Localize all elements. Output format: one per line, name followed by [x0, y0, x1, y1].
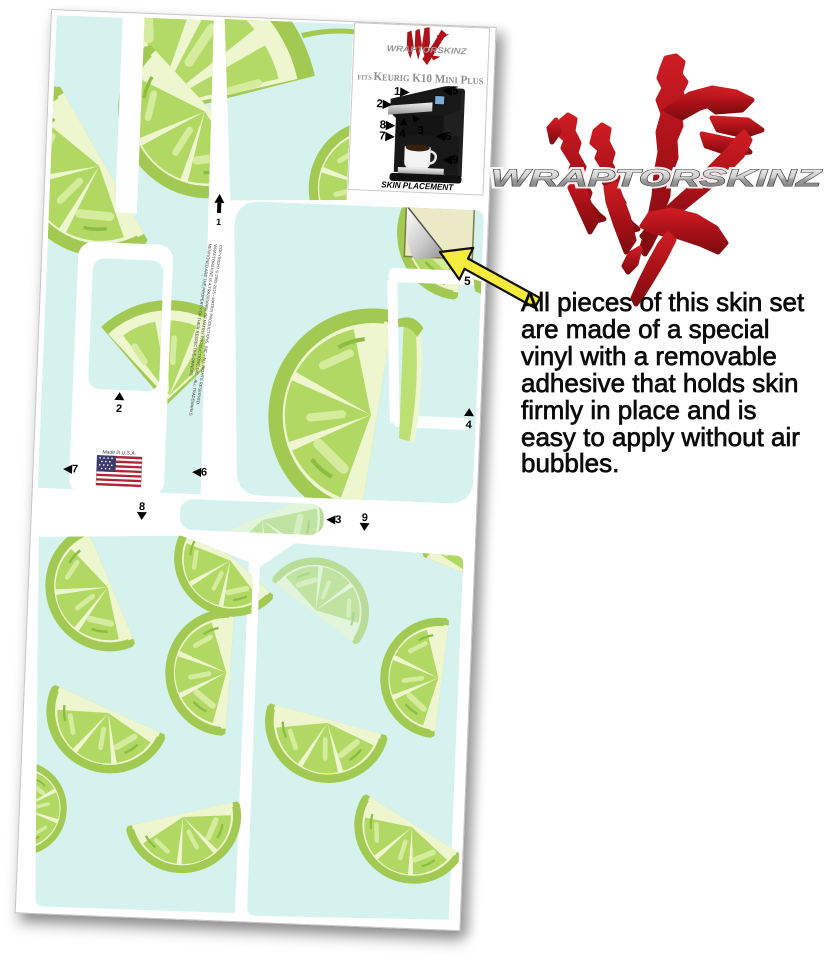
svg-text:WRAPTORSKINZ: WRAPTORSKINZ — [491, 165, 823, 192]
